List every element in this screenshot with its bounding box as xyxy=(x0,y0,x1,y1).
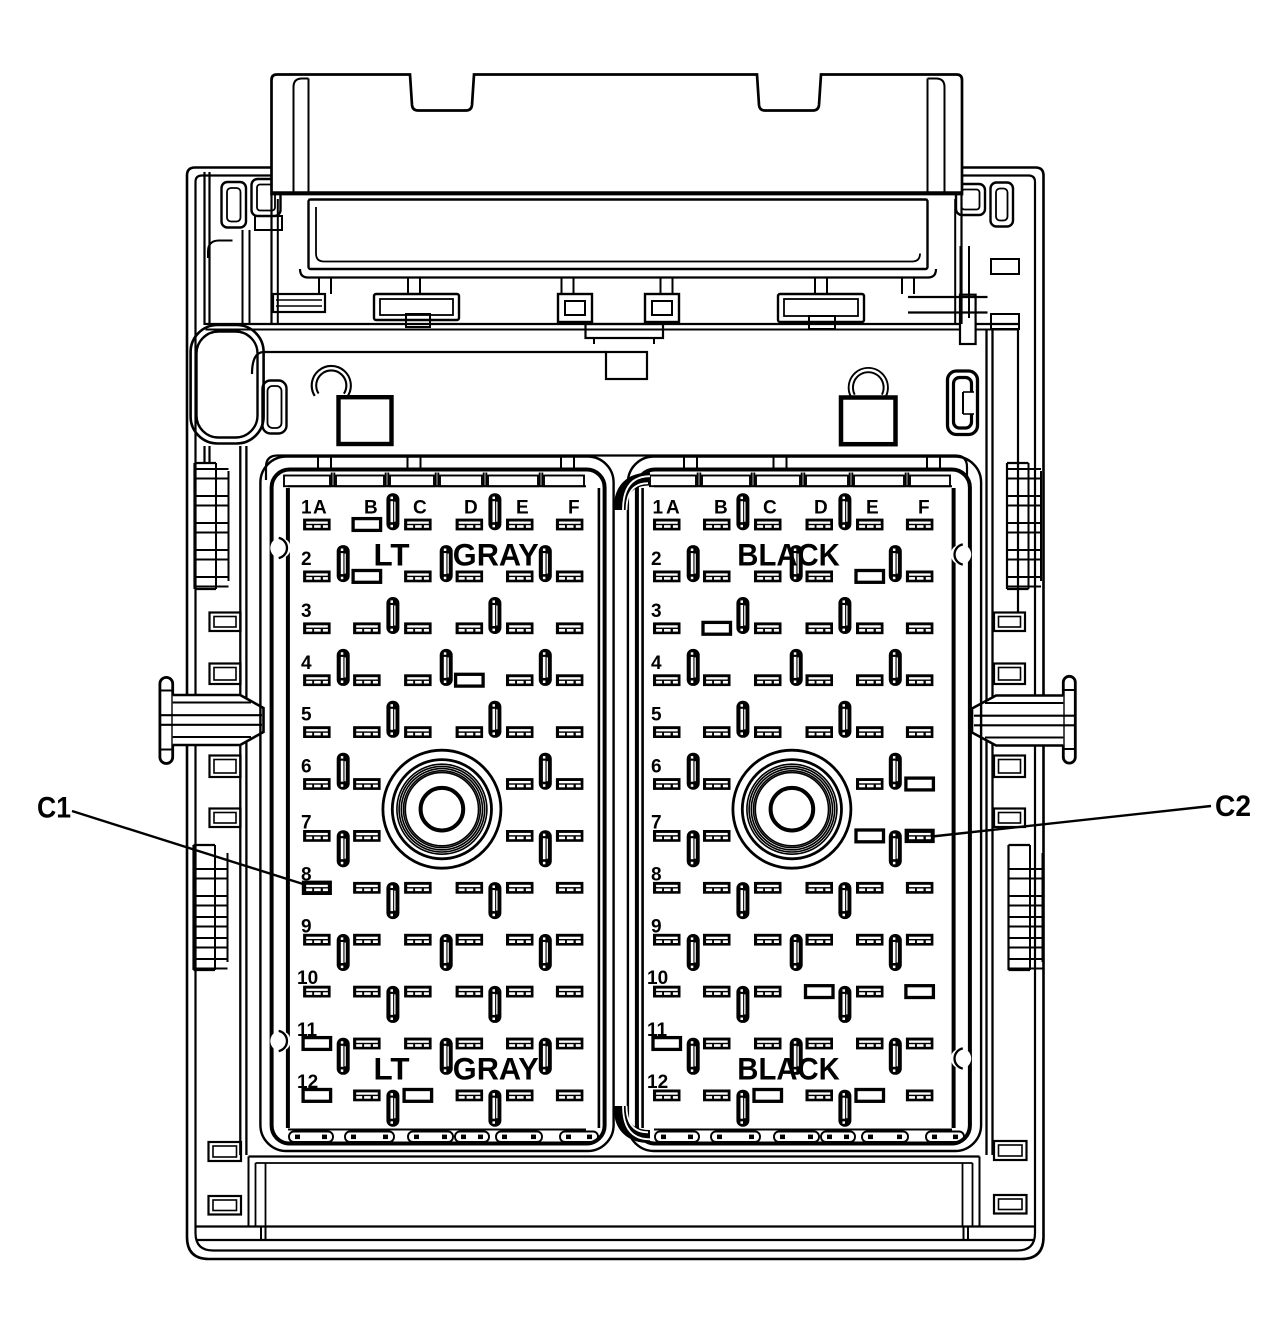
svg-text:2: 2 xyxy=(651,549,662,570)
svg-text:6: 6 xyxy=(651,757,662,778)
svg-text:GRAY: GRAY xyxy=(453,537,539,573)
svg-text:A: A xyxy=(313,498,327,519)
svg-text:A: A xyxy=(666,498,680,519)
svg-text:B: B xyxy=(364,498,378,519)
svg-text:C: C xyxy=(763,498,777,519)
svg-text:3: 3 xyxy=(651,601,662,622)
svg-text:3: 3 xyxy=(301,601,312,622)
svg-text:5: 5 xyxy=(651,705,662,726)
svg-text:E: E xyxy=(516,498,529,519)
svg-text:D: D xyxy=(464,498,478,519)
svg-text:LT: LT xyxy=(374,537,410,573)
svg-text:BLACK: BLACK xyxy=(737,537,840,573)
svg-text:4: 4 xyxy=(301,653,312,674)
svg-text:5: 5 xyxy=(301,705,312,726)
svg-text:1: 1 xyxy=(653,498,664,519)
svg-text:B: B xyxy=(714,498,728,519)
svg-text:2: 2 xyxy=(301,549,312,570)
svg-text:1: 1 xyxy=(301,498,312,519)
svg-text:LT: LT xyxy=(374,1051,410,1087)
svg-text:D: D xyxy=(814,498,828,519)
svg-text:F: F xyxy=(568,498,580,519)
svg-text:F: F xyxy=(918,498,930,519)
svg-text:BLACK: BLACK xyxy=(737,1051,840,1087)
svg-text:C1: C1 xyxy=(37,792,71,825)
svg-text:4: 4 xyxy=(651,653,662,674)
svg-text:C: C xyxy=(413,498,427,519)
svg-text:C2: C2 xyxy=(1215,790,1251,823)
svg-text:GRAY: GRAY xyxy=(453,1051,539,1087)
svg-text:6: 6 xyxy=(301,757,312,778)
svg-text:E: E xyxy=(866,498,879,519)
